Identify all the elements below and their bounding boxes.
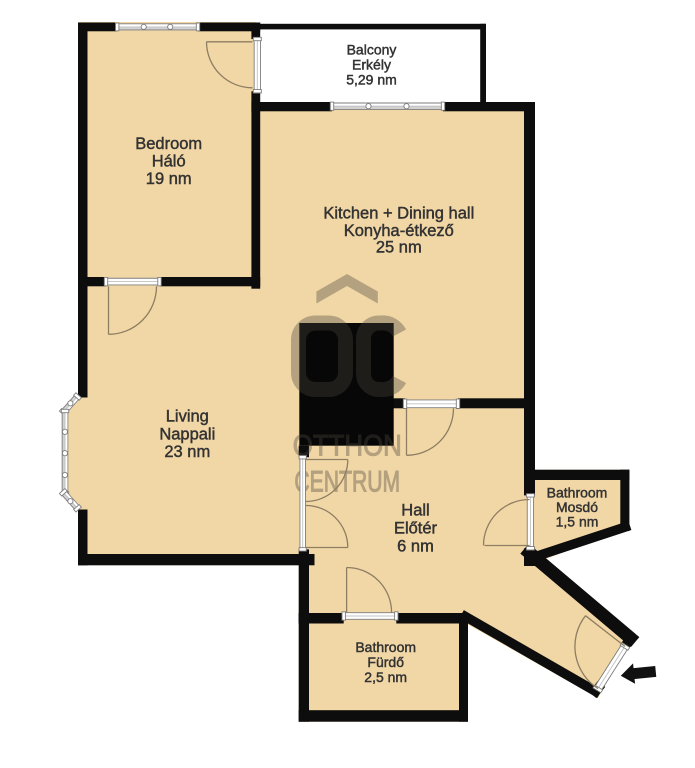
svg-text:Balcony: Balcony (347, 41, 397, 57)
svg-text:Előtér: Előtér (394, 520, 438, 538)
svg-text:Hall: Hall (401, 501, 429, 519)
svg-text:19 nm: 19 nm (146, 170, 192, 188)
svg-text:Living: Living (166, 408, 209, 426)
svg-text:Konyha-étkező: Konyha-étkező (344, 222, 454, 240)
svg-text:OTTHON: OTTHON (293, 430, 402, 463)
svg-text:2,5 nm: 2,5 nm (364, 669, 407, 685)
svg-text:1,5 nm: 1,5 nm (556, 513, 599, 529)
svg-text:Erkély: Erkély (352, 56, 391, 72)
svg-text:CENTRUM: CENTRUM (294, 465, 400, 498)
svg-text:23 nm: 23 nm (164, 443, 210, 461)
svg-text:Bathroom: Bathroom (355, 639, 416, 655)
svg-text:6 nm: 6 nm (397, 538, 434, 556)
svg-text:Bedroom: Bedroom (135, 135, 202, 153)
svg-text:Háló: Háló (152, 152, 186, 170)
svg-text:5,29 nm: 5,29 nm (346, 72, 397, 88)
svg-text:Kitchen + Dining hall: Kitchen + Dining hall (323, 204, 474, 222)
svg-text:25 nm: 25 nm (376, 239, 422, 257)
svg-text:Nappali: Nappali (159, 426, 215, 444)
svg-text:Fürdő: Fürdő (367, 654, 404, 670)
